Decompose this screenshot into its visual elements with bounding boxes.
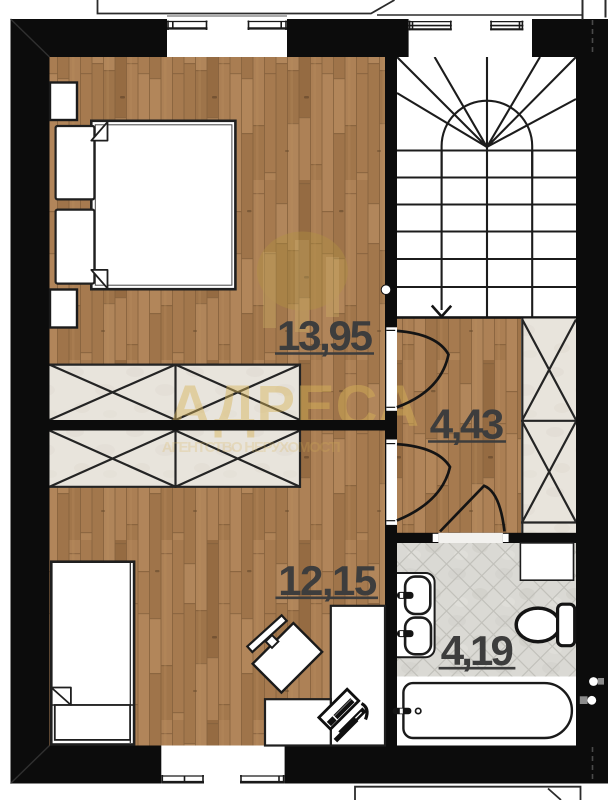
svg-text:АГЕНТСТВО НЕРУХОМОСТІ: АГЕНТСТВО НЕРУХОМОСТІ	[162, 439, 342, 456]
svg-text:13,95: 13,95	[277, 312, 373, 359]
